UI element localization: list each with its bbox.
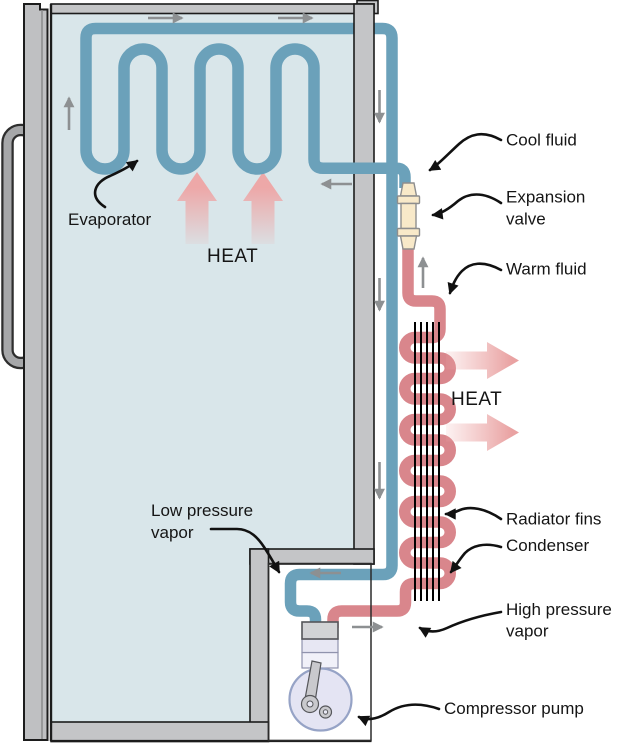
diagram-canvas: Cool fluid Expansion valve Warm fluid HE… <box>0 0 622 745</box>
heat-right-arrow-2-icon <box>446 414 519 451</box>
refrigerator-door <box>24 4 48 740</box>
leader-warm-fluid <box>450 264 501 293</box>
label-expansion-line1: Expansion <box>506 188 585 207</box>
compressor-pump <box>290 622 352 731</box>
leader-high-pressure-vapor <box>420 612 501 631</box>
label-low-pressure-line1: Low pressure <box>151 501 253 520</box>
label-radiator-fins: Radiator fins <box>506 510 601 529</box>
leader-condenser <box>451 545 501 572</box>
label-expansion-line2: valve <box>506 210 546 229</box>
compressor-bulb <box>290 669 352 731</box>
frame-bottom-band <box>51 722 269 742</box>
expansion-valve <box>398 183 420 249</box>
label-compressor-pump: Compressor pump <box>444 699 584 718</box>
label-heat-outside: HEAT <box>451 389 502 410</box>
compressor-cap <box>302 622 338 639</box>
frame-notch-wall <box>250 549 269 741</box>
label-warm-fluid: Warm fluid <box>506 260 587 279</box>
heat-right-arrow-1-icon <box>446 342 519 379</box>
label-high-pressure-line2: vapor <box>506 622 549 641</box>
label-condenser: Condenser <box>506 536 590 555</box>
label-heat-inside: HEAT <box>207 246 258 267</box>
label-high-pressure-line1: High pressure <box>506 600 612 619</box>
refrigeration-cycle-diagram: Cool fluid Expansion valve Warm fluid HE… <box>0 0 622 745</box>
frame-top-band <box>51 4 374 14</box>
leader-cool-fluid <box>430 134 501 170</box>
label-low-pressure-line2: vapor <box>151 523 194 542</box>
label-evaporator: Evaporator <box>68 210 151 229</box>
label-cool-fluid: Cool fluid <box>506 131 577 150</box>
frame-right-wall <box>354 4 374 564</box>
leader-radiator-fins <box>446 508 501 519</box>
leader-expansion-valve <box>433 195 501 216</box>
